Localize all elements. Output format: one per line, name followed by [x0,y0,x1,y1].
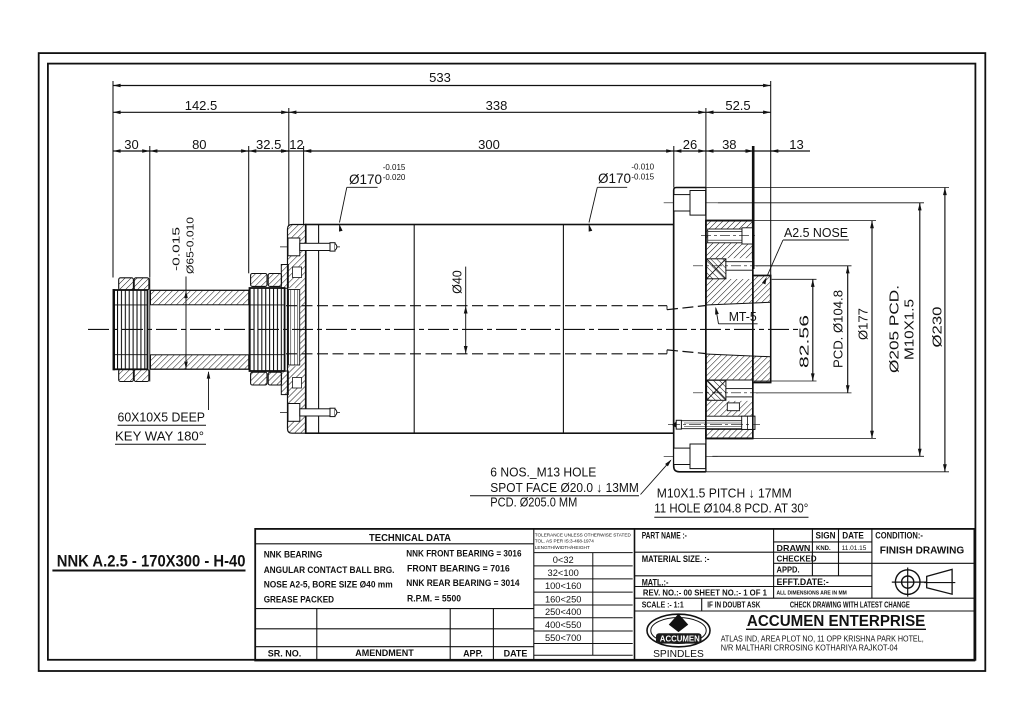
svg-text:NNK BEARING: NNK BEARING [264,550,323,561]
svg-text:82.56: 82.56 [797,315,812,368]
svg-text:TOL. AS PER IS:3-468-1974: TOL. AS PER IS:3-468-1974 [535,539,594,545]
svg-text:ALL DIMENSIONS ARE IN MM: ALL DIMENSIONS ARE IN MM [777,591,847,597]
svg-text:160<250: 160<250 [545,594,581,604]
svg-text:32.5: 32.5 [256,137,281,152]
svg-text:ACCUMEN ENTERPRISE: ACCUMEN ENTERPRISE [747,613,925,630]
svg-text:TOLERANCE UNLESS OTHERWISE STA: TOLERANCE UNLESS OTHERWISE STATED [535,532,631,538]
svg-text:12: 12 [289,137,303,152]
svg-text:38: 38 [722,137,736,152]
svg-text:-0.015: -0.015 [383,163,406,172]
svg-text:300: 300 [478,137,500,152]
svg-text:SR. NO.: SR. NO. [268,649,302,659]
svg-text:11.01.15: 11.01.15 [842,545,867,552]
svg-text:0<32: 0<32 [553,555,574,565]
svg-text:ACCUMEN: ACCUMEN [660,635,700,644]
svg-text:Ø205 PCD.: Ø205 PCD. [887,285,902,373]
svg-text:26: 26 [683,137,697,152]
svg-text:M10X1.5: M10X1.5 [902,299,917,360]
svg-text:SCALE :- 1:1: SCALE :- 1:1 [642,600,684,609]
svg-text:Ø230: Ø230 [930,307,945,348]
svg-text:ANGULAR CONTACT BALL BRG.: ANGULAR CONTACT BALL BRG. [264,565,395,576]
svg-text:100<160: 100<160 [545,581,581,591]
svg-text:MT-5: MT-5 [729,309,757,324]
svg-text:R.P.M. = 5500: R.P.M. = 5500 [407,593,461,604]
svg-text:-0.010: -0.010 [631,163,654,172]
svg-text:M10X1.5 PITCH ↓ 17MM: M10X1.5 PITCH ↓ 17MM [657,486,792,501]
svg-text:TECHNICAL DATA: TECHNICAL DATA [369,532,451,544]
svg-text:550<700: 550<700 [545,633,581,643]
svg-text:IF IN DOUBT ASK: IF IN DOUBT ASK [707,600,760,609]
svg-text:Ø170: Ø170 [598,171,631,186]
svg-text:-0.015: -0.015 [631,173,654,182]
svg-text:80: 80 [192,137,206,152]
svg-text:NNK REAR BEARING = 3014: NNK REAR BEARING = 3014 [406,578,520,589]
svg-text:Ø177: Ø177 [856,308,871,340]
svg-text:KND.: KND. [816,546,831,552]
svg-text:A2.5 NOSE: A2.5 NOSE [784,225,848,240]
svg-text:KEY WAY 180°: KEY WAY 180° [115,429,204,444]
svg-text:LENGTH/WIDTH/HEIGHT: LENGTH/WIDTH/HEIGHT [535,545,590,551]
svg-text:60X10X5 DEEP: 60X10X5 DEEP [118,410,206,425]
svg-text:PCD. Ø104.8: PCD. Ø104.8 [831,290,846,368]
svg-text:APP.: APP. [463,649,483,659]
svg-text:30: 30 [124,137,138,152]
svg-text:NNK A.2.5 - 170X300 - H-40: NNK A.2.5 - 170X300 - H-40 [57,552,246,571]
svg-text:MATERIAL SIZE. :-: MATERIAL SIZE. :- [642,554,710,564]
svg-text:AMENDMENT: AMENDMENT [355,648,414,658]
svg-text:250<400: 250<400 [545,607,581,617]
svg-text:N/R MALTHARI CRROSING KOTHARIY: N/R MALTHARI CRROSING KOTHARIYA RAJKOT-0… [721,643,898,653]
svg-text:PCD. Ø205.0 MM: PCD. Ø205.0 MM [490,495,577,510]
svg-text:SIGN: SIGN [816,531,836,541]
svg-text:PART NAME :-: PART NAME :- [642,531,687,541]
svg-text:SPINDLES: SPINDLES [653,648,704,660]
svg-text:DATE: DATE [504,649,528,659]
svg-text:338: 338 [486,98,508,113]
svg-text:400<550: 400<550 [545,620,581,630]
svg-text:533: 533 [429,70,451,85]
svg-text:MATL.:-: MATL.:- [642,577,669,587]
svg-text:NNK FRONT BEARING = 3016: NNK FRONT BEARING = 3016 [406,548,521,559]
svg-text:Ø40: Ø40 [451,270,465,294]
svg-text:GREASE PACKED: GREASE PACKED [264,595,334,606]
svg-text:CHECKED: CHECKED [777,554,817,564]
svg-text:EFFT.DATE:-: EFFT.DATE:- [777,577,829,587]
svg-text:13: 13 [789,137,803,152]
svg-text:CONDITION:-: CONDITION:- [875,531,923,541]
svg-text:32<100: 32<100 [548,568,579,578]
svg-text:DRAWN: DRAWN [777,543,811,553]
svg-text:DATE: DATE [842,531,864,541]
svg-text:NOSE A2-5, BORE SIZE Ø40 mm: NOSE A2-5, BORE SIZE Ø40 mm [264,580,393,591]
svg-text:-0.020: -0.020 [383,173,406,182]
svg-text:SPOT FACE Ø20.0 ↓ 13MM: SPOT FACE Ø20.0 ↓ 13MM [490,480,639,495]
svg-text:Ø65-0.010: Ø65-0.010 [185,217,197,274]
svg-text:52.5: 52.5 [725,98,750,113]
svg-text:-0.015: -0.015 [171,227,183,271]
svg-text:Ø170: Ø170 [349,172,382,187]
svg-text:6 NOS._M13 HOLE: 6 NOS._M13 HOLE [490,465,596,480]
svg-text:142.5: 142.5 [185,98,218,113]
svg-text:11 HOLE Ø104.8 PCD. AT 30°: 11 HOLE Ø104.8 PCD. AT 30° [654,501,808,516]
svg-text:REV. NO.:- 00 SHEET NO.:-: REV. NO.:- 00 SHEET NO.:- 1 OF 1 [643,589,767,598]
svg-text:FRONT BEARING = 7016: FRONT BEARING = 7016 [407,563,510,574]
svg-text:FINISH DRAWING: FINISH DRAWING [880,544,964,556]
svg-text:APPD.: APPD. [777,565,800,575]
svg-text:CHECK DRAWING WITH LATEST CHAN: CHECK DRAWING WITH LATEST CHANGE [790,600,910,609]
